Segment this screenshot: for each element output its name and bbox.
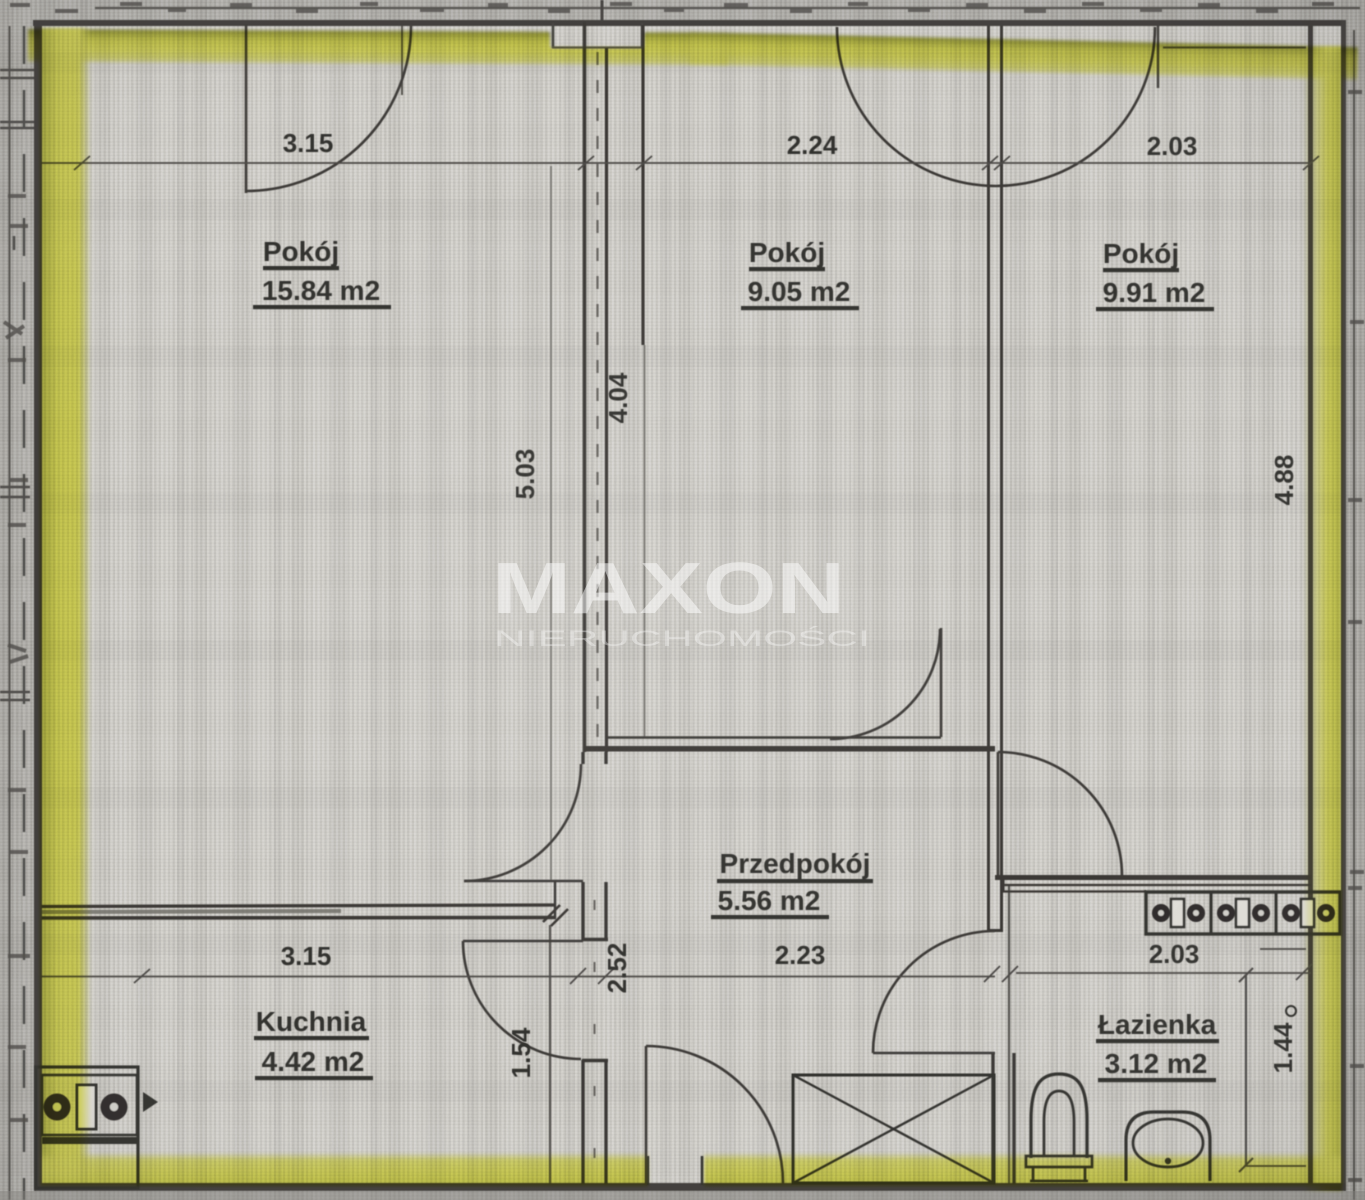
svg-text:MAXON: MAXON [492, 549, 845, 629]
svg-text:NIERUCHOMOŚCI: NIERUCHOMOŚCI [494, 626, 870, 651]
